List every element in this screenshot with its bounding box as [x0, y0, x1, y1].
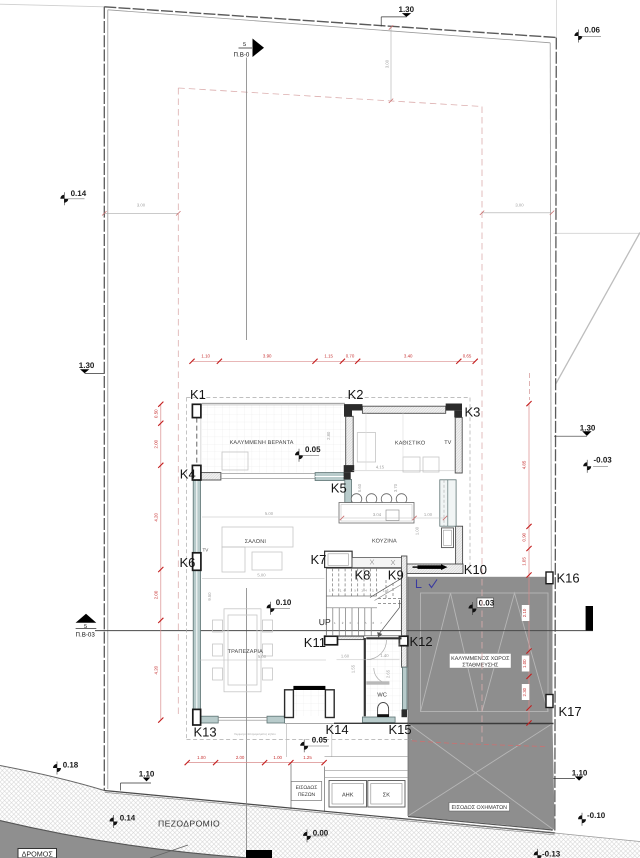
svg-text:4.20: 4.20 — [153, 665, 158, 674]
svg-text:1 2 3 4 5 6 7: 1 2 3 4 5 6 7 — [334, 621, 384, 625]
svg-text:1.10: 1.10 — [201, 354, 210, 359]
svg-text:-0.03: -0.03 — [594, 456, 613, 465]
svg-text:K6: K6 — [180, 555, 196, 570]
svg-text:2.00: 2.00 — [153, 590, 158, 599]
svg-text:ΣΚ: ΣΚ — [383, 793, 390, 799]
svg-text:1.10: 1.10 — [572, 769, 588, 778]
svg-text:0.06: 0.06 — [584, 26, 600, 35]
svg-text:2.10: 2.10 — [522, 608, 527, 617]
svg-text:ΔΡΟΜΟΣ: ΔΡΟΜΟΣ — [22, 849, 54, 858]
svg-text:K1: K1 — [190, 387, 206, 402]
svg-text:1.30: 1.30 — [399, 5, 415, 14]
svg-text:1.05: 1.05 — [522, 557, 527, 566]
svg-text:1.10: 1.10 — [139, 770, 155, 779]
svg-text:ΠΕΖΟΔΡΟΜΙΟ: ΠΕΖΟΔΡΟΜΙΟ — [158, 819, 220, 829]
svg-text:K11: K11 — [304, 635, 326, 650]
svg-text:3.90: 3.90 — [263, 354, 272, 359]
svg-text:0.10: 0.10 — [276, 598, 292, 607]
svg-text:K12: K12 — [410, 634, 433, 649]
svg-text:ΤΡΑΠΕΖΑΡΙΑ: ΤΡΑΠΕΖΑΡΙΑ — [228, 649, 264, 655]
svg-text:K2: K2 — [348, 387, 364, 402]
svg-text:-0.10: -0.10 — [587, 811, 606, 820]
svg-text:ΚΑΛΥΜΜΕΝΟΣ ΧΩΡΟΣ: ΚΑΛΥΜΜΕΝΟΣ ΧΩΡΟΣ — [451, 656, 510, 662]
svg-text:5.00: 5.00 — [265, 511, 274, 516]
svg-text:ΣΤΑΘΜΕΥΣΗΣ: ΣΤΑΘΜΕΥΣΗΣ — [462, 663, 499, 669]
svg-text:ΚΑΘΙΣΤΙΚΟ: ΚΑΘΙΣΤΙΚΟ — [395, 440, 426, 446]
svg-text:K10: K10 — [464, 562, 487, 577]
svg-text:ΕΙΣΟΔΟΣ: ΕΙΣΟΔΟΣ — [296, 785, 318, 791]
svg-text:K9: K9 — [388, 568, 404, 583]
svg-text:ΣΑΛΟΝΙ: ΣΑΛΟΝΙ — [245, 539, 267, 545]
svg-text:1.25: 1.25 — [303, 755, 312, 760]
svg-text:1.00: 1.00 — [414, 526, 419, 535]
svg-text:0.65: 0.65 — [463, 354, 472, 359]
svg-text:UP: UP — [319, 617, 331, 627]
svg-text:2.65: 2.65 — [386, 669, 391, 678]
svg-text:9.50: 9.50 — [207, 592, 212, 601]
svg-text:K16: K16 — [557, 571, 580, 586]
svg-text:1.00: 1.00 — [522, 659, 527, 668]
svg-text:3.40: 3.40 — [404, 354, 413, 359]
svg-text:4.85: 4.85 — [522, 460, 527, 469]
svg-text:5.60: 5.60 — [357, 483, 362, 492]
svg-text:WC: WC — [377, 692, 387, 699]
svg-text:3.04: 3.04 — [373, 512, 382, 517]
svg-text:1.00: 1.00 — [273, 755, 282, 760]
svg-text:3.00: 3.00 — [137, 203, 146, 208]
svg-text:K4: K4 — [180, 467, 196, 482]
svg-text:1.40: 1.40 — [380, 653, 389, 658]
svg-text:K17: K17 — [559, 704, 582, 719]
svg-text:1.30: 1.30 — [580, 424, 596, 433]
svg-text:4.15: 4.15 — [376, 465, 385, 470]
svg-text:0.14: 0.14 — [120, 814, 136, 823]
svg-text:K15: K15 — [389, 722, 412, 737]
svg-text:K7: K7 — [311, 552, 327, 567]
svg-text:Περιμετρο Φιλτραρισματος κηπου: Περιμετρο Φιλτραρισματος κηπου — [234, 732, 276, 736]
svg-text:3.00: 3.00 — [384, 59, 389, 68]
svg-text:Π.Β-0: Π.Β-0 — [234, 52, 250, 59]
svg-text:1.55: 1.55 — [351, 664, 356, 673]
svg-text:17 16 15 14 13 12: 17 16 15 14 13 12 — [329, 589, 391, 593]
svg-text:K8: K8 — [355, 568, 371, 583]
svg-text:TV: TV — [444, 440, 451, 446]
svg-text:1.60: 1.60 — [341, 653, 350, 658]
svg-text:2.80: 2.80 — [326, 431, 331, 440]
svg-text:3.00: 3.00 — [515, 202, 524, 207]
svg-text:0.05: 0.05 — [312, 736, 328, 745]
svg-text:0.14: 0.14 — [71, 189, 87, 198]
svg-text:0.70: 0.70 — [346, 354, 355, 359]
svg-text:4.20: 4.20 — [153, 513, 158, 522]
svg-text:ΑΗΚ: ΑΗΚ — [342, 793, 354, 799]
svg-text:K14: K14 — [326, 722, 349, 737]
svg-text:K3: K3 — [465, 405, 481, 420]
svg-text:Π.Β-03: Π.Β-03 — [76, 632, 96, 639]
svg-text:1.00: 1.00 — [197, 755, 206, 760]
svg-text:5: 5 — [243, 42, 246, 48]
svg-text:0.50: 0.50 — [153, 409, 158, 418]
svg-text:2.30: 2.30 — [522, 687, 527, 696]
svg-text:1.30: 1.30 — [79, 361, 95, 370]
svg-text:1.00: 1.00 — [424, 512, 433, 517]
svg-text:2.00: 2.00 — [236, 755, 245, 760]
svg-text:ΠΕΖΩΝ: ΠΕΖΩΝ — [298, 792, 316, 798]
svg-text:ΚΟΥΖΙΝΑ: ΚΟΥΖΙΝΑ — [372, 539, 397, 545]
svg-text:0.90: 0.90 — [522, 532, 527, 541]
svg-text:K13: K13 — [194, 725, 217, 740]
svg-text:3.70: 3.70 — [393, 483, 398, 492]
svg-text:1.15: 1.15 — [324, 354, 333, 359]
svg-text:0.18: 0.18 — [63, 761, 79, 770]
svg-text:-0.13: -0.13 — [542, 849, 561, 858]
svg-text:TV: TV — [203, 548, 210, 553]
svg-text:K5: K5 — [331, 481, 347, 496]
svg-text:0.05: 0.05 — [305, 445, 321, 454]
svg-text:ΚΑΛΥΜΜΕΝΗ ΒΕΡΑΝΤΑ: ΚΑΛΥΜΜΕΝΗ ΒΕΡΑΝΤΑ — [230, 440, 294, 446]
svg-text:0.03: 0.03 — [479, 599, 495, 608]
svg-text:ΕΙΣΟΔΟΣ ΟΧΗΜΑΤΩΝ: ΕΙΣΟΔΟΣ ΟΧΗΜΑΤΩΝ — [452, 805, 508, 811]
svg-text:2.00: 2.00 — [153, 439, 158, 448]
svg-text:5.00: 5.00 — [257, 572, 266, 577]
